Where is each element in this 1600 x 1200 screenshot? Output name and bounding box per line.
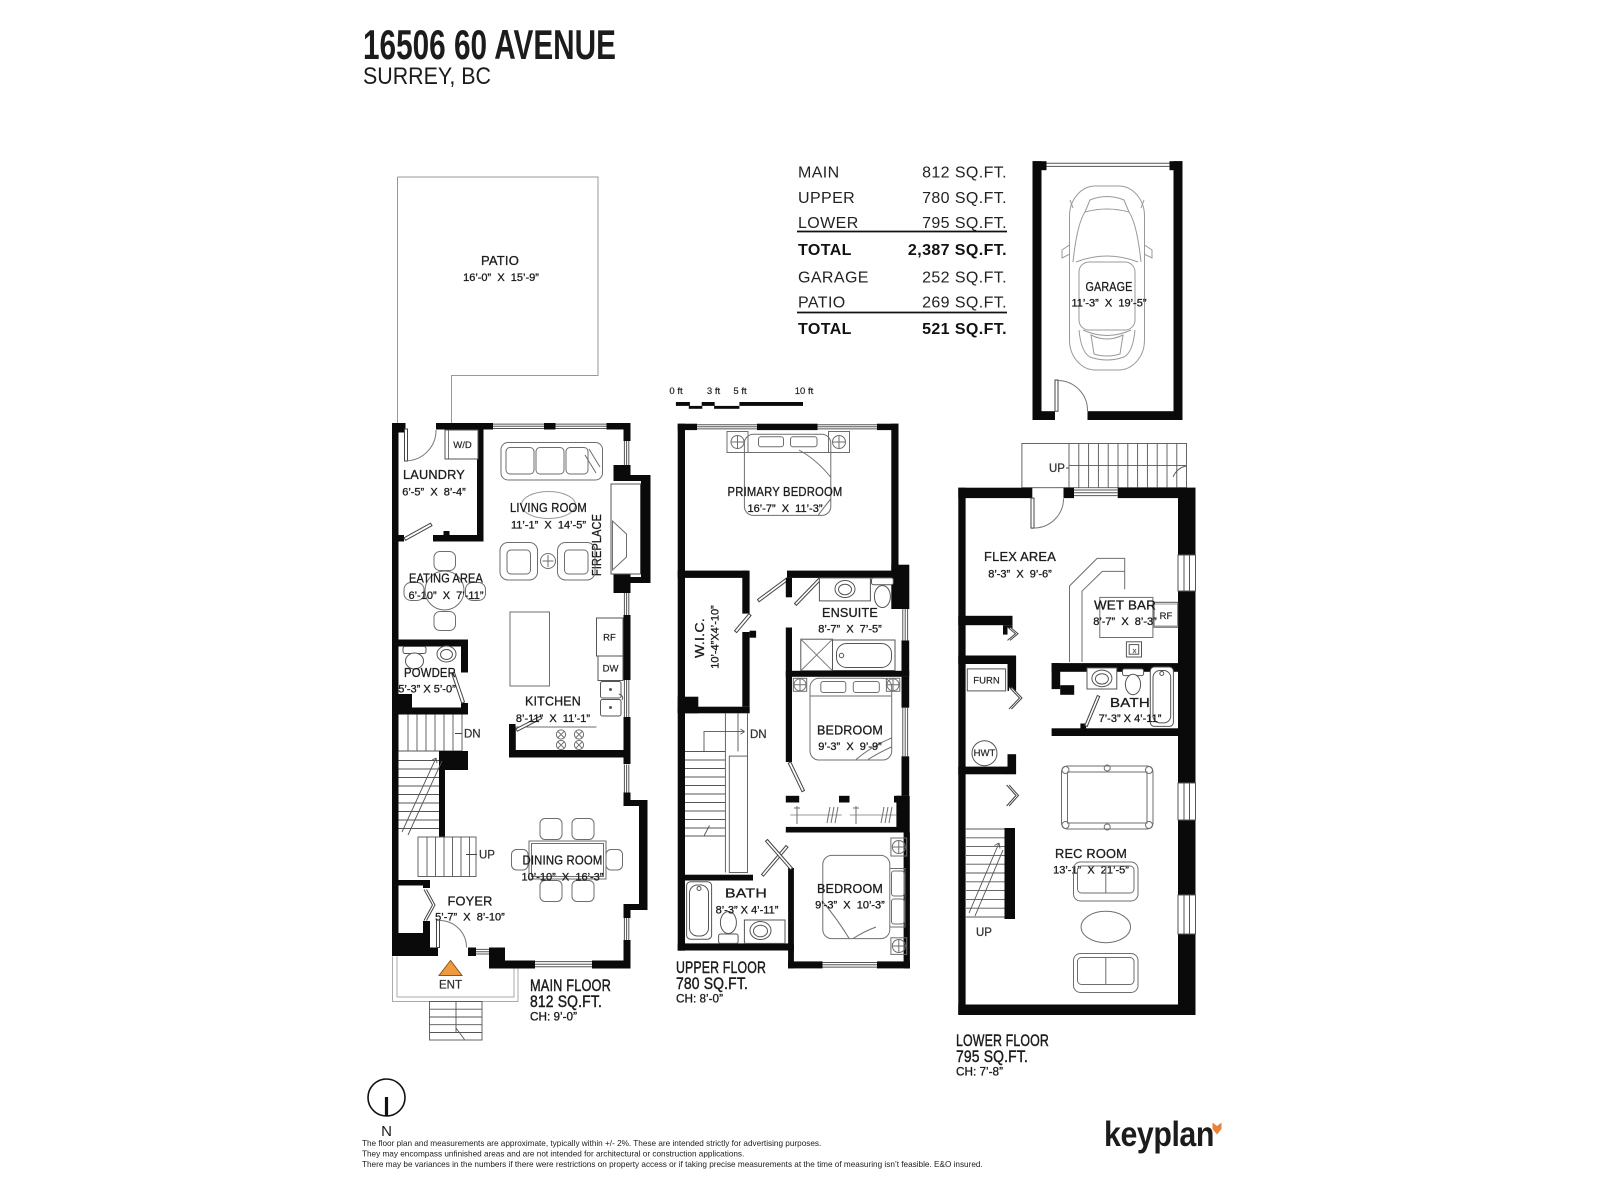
svg-text:There may be variances in the: There may be variances in the numbers if… <box>362 1160 983 1169</box>
svg-text:DN: DN <box>750 729 767 741</box>
svg-text:6’-5” X 8’-4”: 6’-5” X 8’-4” <box>402 487 466 499</box>
svg-text:DW: DW <box>603 664 619 675</box>
svg-text:GARAGE: GARAGE <box>798 270 869 287</box>
svg-text:TOTAL: TOTAL <box>798 321 852 338</box>
svg-text:11’-1” X 14’-5”: 11’-1” X 14’-5” <box>511 520 586 532</box>
svg-text:CH: 9’-0”: CH: 9’-0” <box>530 1010 577 1024</box>
svg-text:KITCHEN: KITCHEN <box>525 694 581 709</box>
svg-text:8’-3” X 9’-6”: 8’-3” X 9’-6” <box>988 569 1052 581</box>
svg-text:LIVING ROOM: LIVING ROOM <box>510 500 587 515</box>
svg-text:GARAGE: GARAGE <box>1086 279 1133 294</box>
svg-text:FOYER: FOYER <box>448 894 493 909</box>
svg-text:PATIO: PATIO <box>798 295 846 312</box>
svg-text:7’-3” X 4’-11”: 7’-3” X 4’-11” <box>1099 713 1162 725</box>
svg-text:FIREPLACE: FIREPLACE <box>589 514 604 576</box>
svg-text:8’-11” X 11’-1”: 8’-11” X 11’-1” <box>516 713 591 725</box>
svg-text:10’-10” X 16’-3”: 10’-10” X 16’-3” <box>522 872 604 884</box>
svg-text:FURN: FURN <box>973 676 1000 687</box>
svg-text:PATIO: PATIO <box>481 253 519 268</box>
svg-text:WET BAR: WET BAR <box>1094 598 1156 613</box>
svg-text:16’-0” X 15’-9”: 16’-0” X 15’-9” <box>463 272 539 284</box>
svg-text:W.I.C.: W.I.C. <box>692 618 707 658</box>
svg-text:252 SQ.FT.: 252 SQ.FT. <box>922 270 1007 287</box>
svg-text:BEDROOM: BEDROOM <box>817 881 883 896</box>
svg-text:SURREY, BC: SURREY, BC <box>363 63 491 90</box>
svg-text:W/D: W/D <box>453 440 472 451</box>
svg-text:UP: UP <box>976 927 992 939</box>
svg-text:ENT: ENT <box>439 980 462 992</box>
svg-text:780 SQ.FT.: 780 SQ.FT. <box>922 190 1007 207</box>
svg-text:PRIMARY BEDROOM: PRIMARY BEDROOM <box>728 484 843 499</box>
svg-text:DINING ROOM: DINING ROOM <box>523 853 603 868</box>
svg-text:BEDROOM: BEDROOM <box>817 723 883 738</box>
svg-text:11’-3” X 19’-5”: 11’-3” X 19’-5” <box>1072 298 1147 310</box>
svg-text:780 SQ.FT.: 780 SQ.FT. <box>676 974 748 993</box>
svg-text:LOWER: LOWER <box>798 215 859 232</box>
svg-text:0 ft: 0 ft <box>669 386 683 397</box>
svg-text:UPPER: UPPER <box>798 190 855 207</box>
svg-text:8’-7” X 7’-5”: 8’-7” X 7’-5” <box>818 624 882 636</box>
svg-text:LAUNDRY: LAUNDRY <box>403 467 465 482</box>
svg-text:DN: DN <box>464 729 481 741</box>
svg-text:RF: RF <box>1160 611 1173 622</box>
svg-text:8’-3” X 4’-11”: 8’-3” X 4’-11” <box>716 905 779 917</box>
svg-text:16’-7” X 11’-3”: 16’-7” X 11’-3” <box>748 503 823 515</box>
svg-text:BATH: BATH <box>1110 695 1150 710</box>
svg-text:795 SQ.FT.: 795 SQ.FT. <box>922 215 1007 232</box>
svg-text:The floor plan and measurement: The floor plan and measurements are appr… <box>362 1139 821 1148</box>
svg-text:keyplan: keyplan <box>1104 1115 1214 1154</box>
svg-text:UP: UP <box>1049 463 1065 475</box>
svg-text:HWT: HWT <box>974 748 996 759</box>
svg-text:REC ROOM: REC ROOM <box>1055 846 1127 861</box>
svg-text:POWDER: POWDER <box>404 665 456 680</box>
svg-text:FLEX AREA: FLEX AREA <box>984 549 1056 564</box>
svg-text:MAIN: MAIN <box>798 165 840 182</box>
svg-text:16506 60 AVENUE: 16506 60 AVENUE <box>363 21 616 68</box>
svg-text:9’-3” X 10’-3”: 9’-3” X 10’-3” <box>815 900 885 912</box>
svg-text:10’-4”X4’-10”: 10’-4”X4’-10” <box>710 605 722 669</box>
svg-text:N: N <box>381 1123 392 1140</box>
svg-text:2,387 SQ.FT.: 2,387 SQ.FT. <box>908 242 1007 259</box>
svg-text:521 SQ.FT.: 521 SQ.FT. <box>922 321 1007 338</box>
svg-text:UP: UP <box>479 850 495 862</box>
svg-text:812 SQ.FT.: 812 SQ.FT. <box>530 992 602 1011</box>
svg-text:5’-7” X 8’-10”: 5’-7” X 8’-10” <box>435 912 505 924</box>
svg-text:5’-3” X 5’-0”: 5’-3” X 5’-0” <box>398 684 456 696</box>
svg-text:9’-3” X 9’-9”: 9’-3” X 9’-9” <box>818 741 882 753</box>
svg-text:269 SQ.FT.: 269 SQ.FT. <box>922 295 1007 312</box>
svg-text:795 SQ.FT.: 795 SQ.FT. <box>956 1047 1028 1066</box>
svg-text:5 ft: 5 ft <box>733 386 747 397</box>
svg-text:They may encompass unfinished: They may encompass unfinished areas and … <box>362 1150 744 1159</box>
svg-text:RF: RF <box>603 633 616 644</box>
svg-text:CH: 8’-0”: CH: 8’-0” <box>676 992 723 1006</box>
svg-text:6’-10” X 7’-11”: 6’-10” X 7’-11” <box>409 590 484 602</box>
svg-text:10 ft: 10 ft <box>795 386 814 397</box>
svg-text:CH: 7’-8”: CH: 7’-8” <box>956 1065 1003 1079</box>
svg-text:ENSUITE: ENSUITE <box>822 605 878 620</box>
svg-text:812 SQ.FT.: 812 SQ.FT. <box>922 165 1007 182</box>
svg-text:BATH: BATH <box>725 886 767 901</box>
svg-text:3 ft: 3 ft <box>707 386 721 397</box>
svg-text:TOTAL: TOTAL <box>798 242 852 259</box>
svg-text:EATING AREA: EATING AREA <box>409 571 483 586</box>
svg-text:8’-7” X 8’-3”: 8’-7” X 8’-3” <box>1093 616 1157 628</box>
